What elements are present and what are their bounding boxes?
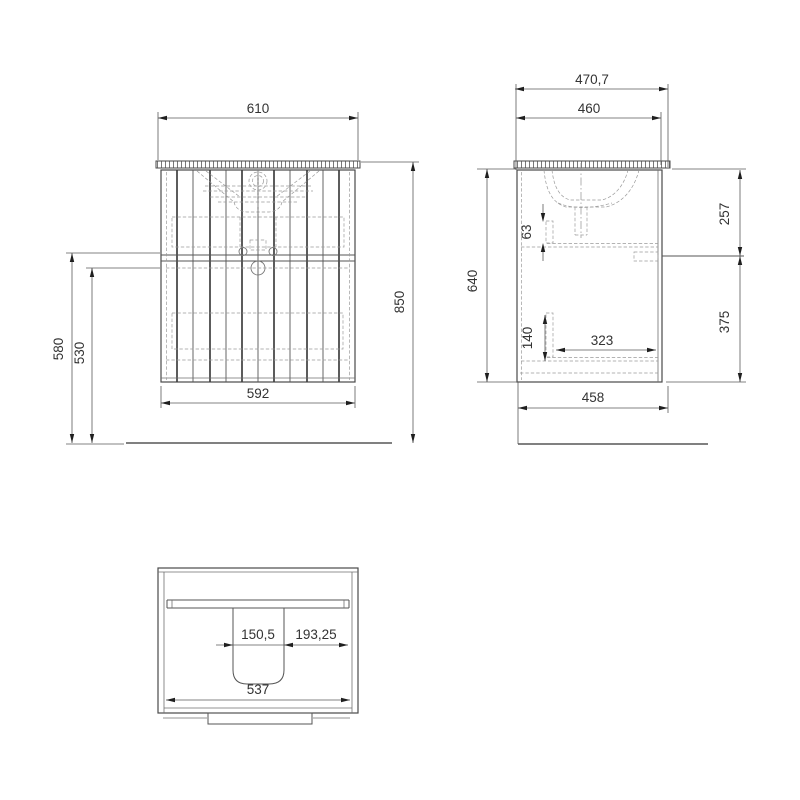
dim-plan-cutout-side-offset: 193,25 (295, 627, 336, 642)
dim-side-upper-front-height: 257 (717, 203, 732, 226)
front-view: 610 592 850 580 530 (51, 101, 419, 444)
side-view: 470,7 460 640 257 375 63 140 323 458 (465, 72, 746, 444)
dim-front-height-inner: 530 (72, 342, 87, 365)
dim-plan-inner-width: 537 (247, 682, 270, 697)
dim-front-body-width: 592 (247, 386, 270, 401)
plan-view: 150,5 193,25 537 (158, 568, 358, 724)
plan-view-linework (158, 568, 358, 724)
dim-side-body-depth-bottom: 458 (582, 390, 605, 405)
plan-siphon-cutout (233, 608, 284, 684)
drawing-canvas: 610 592 850 580 530 (0, 0, 800, 800)
dim-side-inner-gap-top: 63 (519, 224, 534, 239)
side-upper-drawer-hidden (546, 221, 553, 243)
side-view-linework (514, 161, 744, 444)
dim-front-total-height: 850 (392, 291, 407, 314)
dim-side-body-height: 640 (465, 270, 480, 293)
dim-side-inner-depth: 323 (591, 333, 614, 348)
vanity-technical-drawing: 610 592 850 580 530 (0, 0, 800, 800)
front-drain-hole-right (269, 248, 277, 256)
side-lower-drawer-hidden (546, 313, 553, 357)
dim-side-inner-gap-bottom: 140 (520, 327, 535, 350)
dim-plan-cutout-width: 150,5 (241, 627, 275, 642)
dim-front-counter-width: 610 (247, 101, 270, 116)
plan-handle-recess (208, 713, 312, 724)
dim-side-body-depth-top: 460 (578, 101, 601, 116)
side-sink-hidden-lines (544, 163, 639, 238)
front-drain-hole-left (239, 248, 247, 256)
side-countertop (514, 161, 670, 168)
dim-side-counter-depth: 470,7 (575, 72, 609, 87)
front-countertop (156, 161, 360, 168)
dim-side-lower-front-height: 375 (717, 311, 732, 334)
dim-front-height-outer: 580 (51, 338, 66, 361)
plan-front-rail (167, 600, 349, 608)
